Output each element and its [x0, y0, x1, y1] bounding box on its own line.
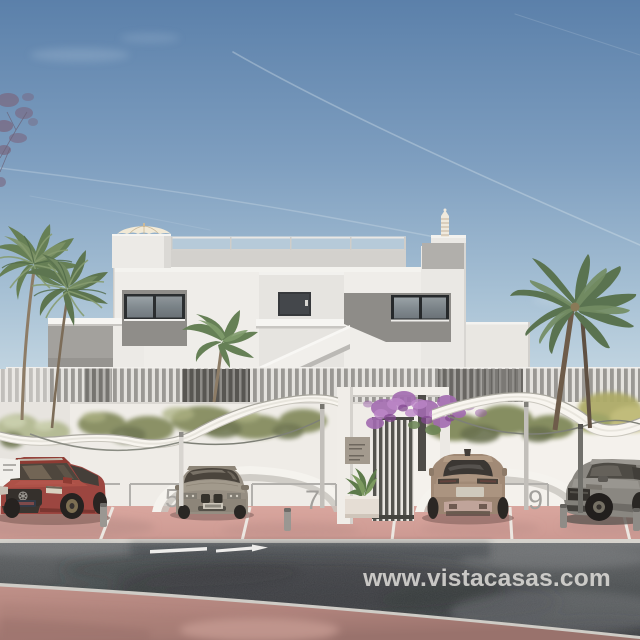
svg-text:9: 9 — [528, 485, 543, 515]
svg-text:7: 7 — [305, 485, 320, 515]
svg-text:www.vistacasas.com: www.vistacasas.com — [362, 565, 611, 592]
